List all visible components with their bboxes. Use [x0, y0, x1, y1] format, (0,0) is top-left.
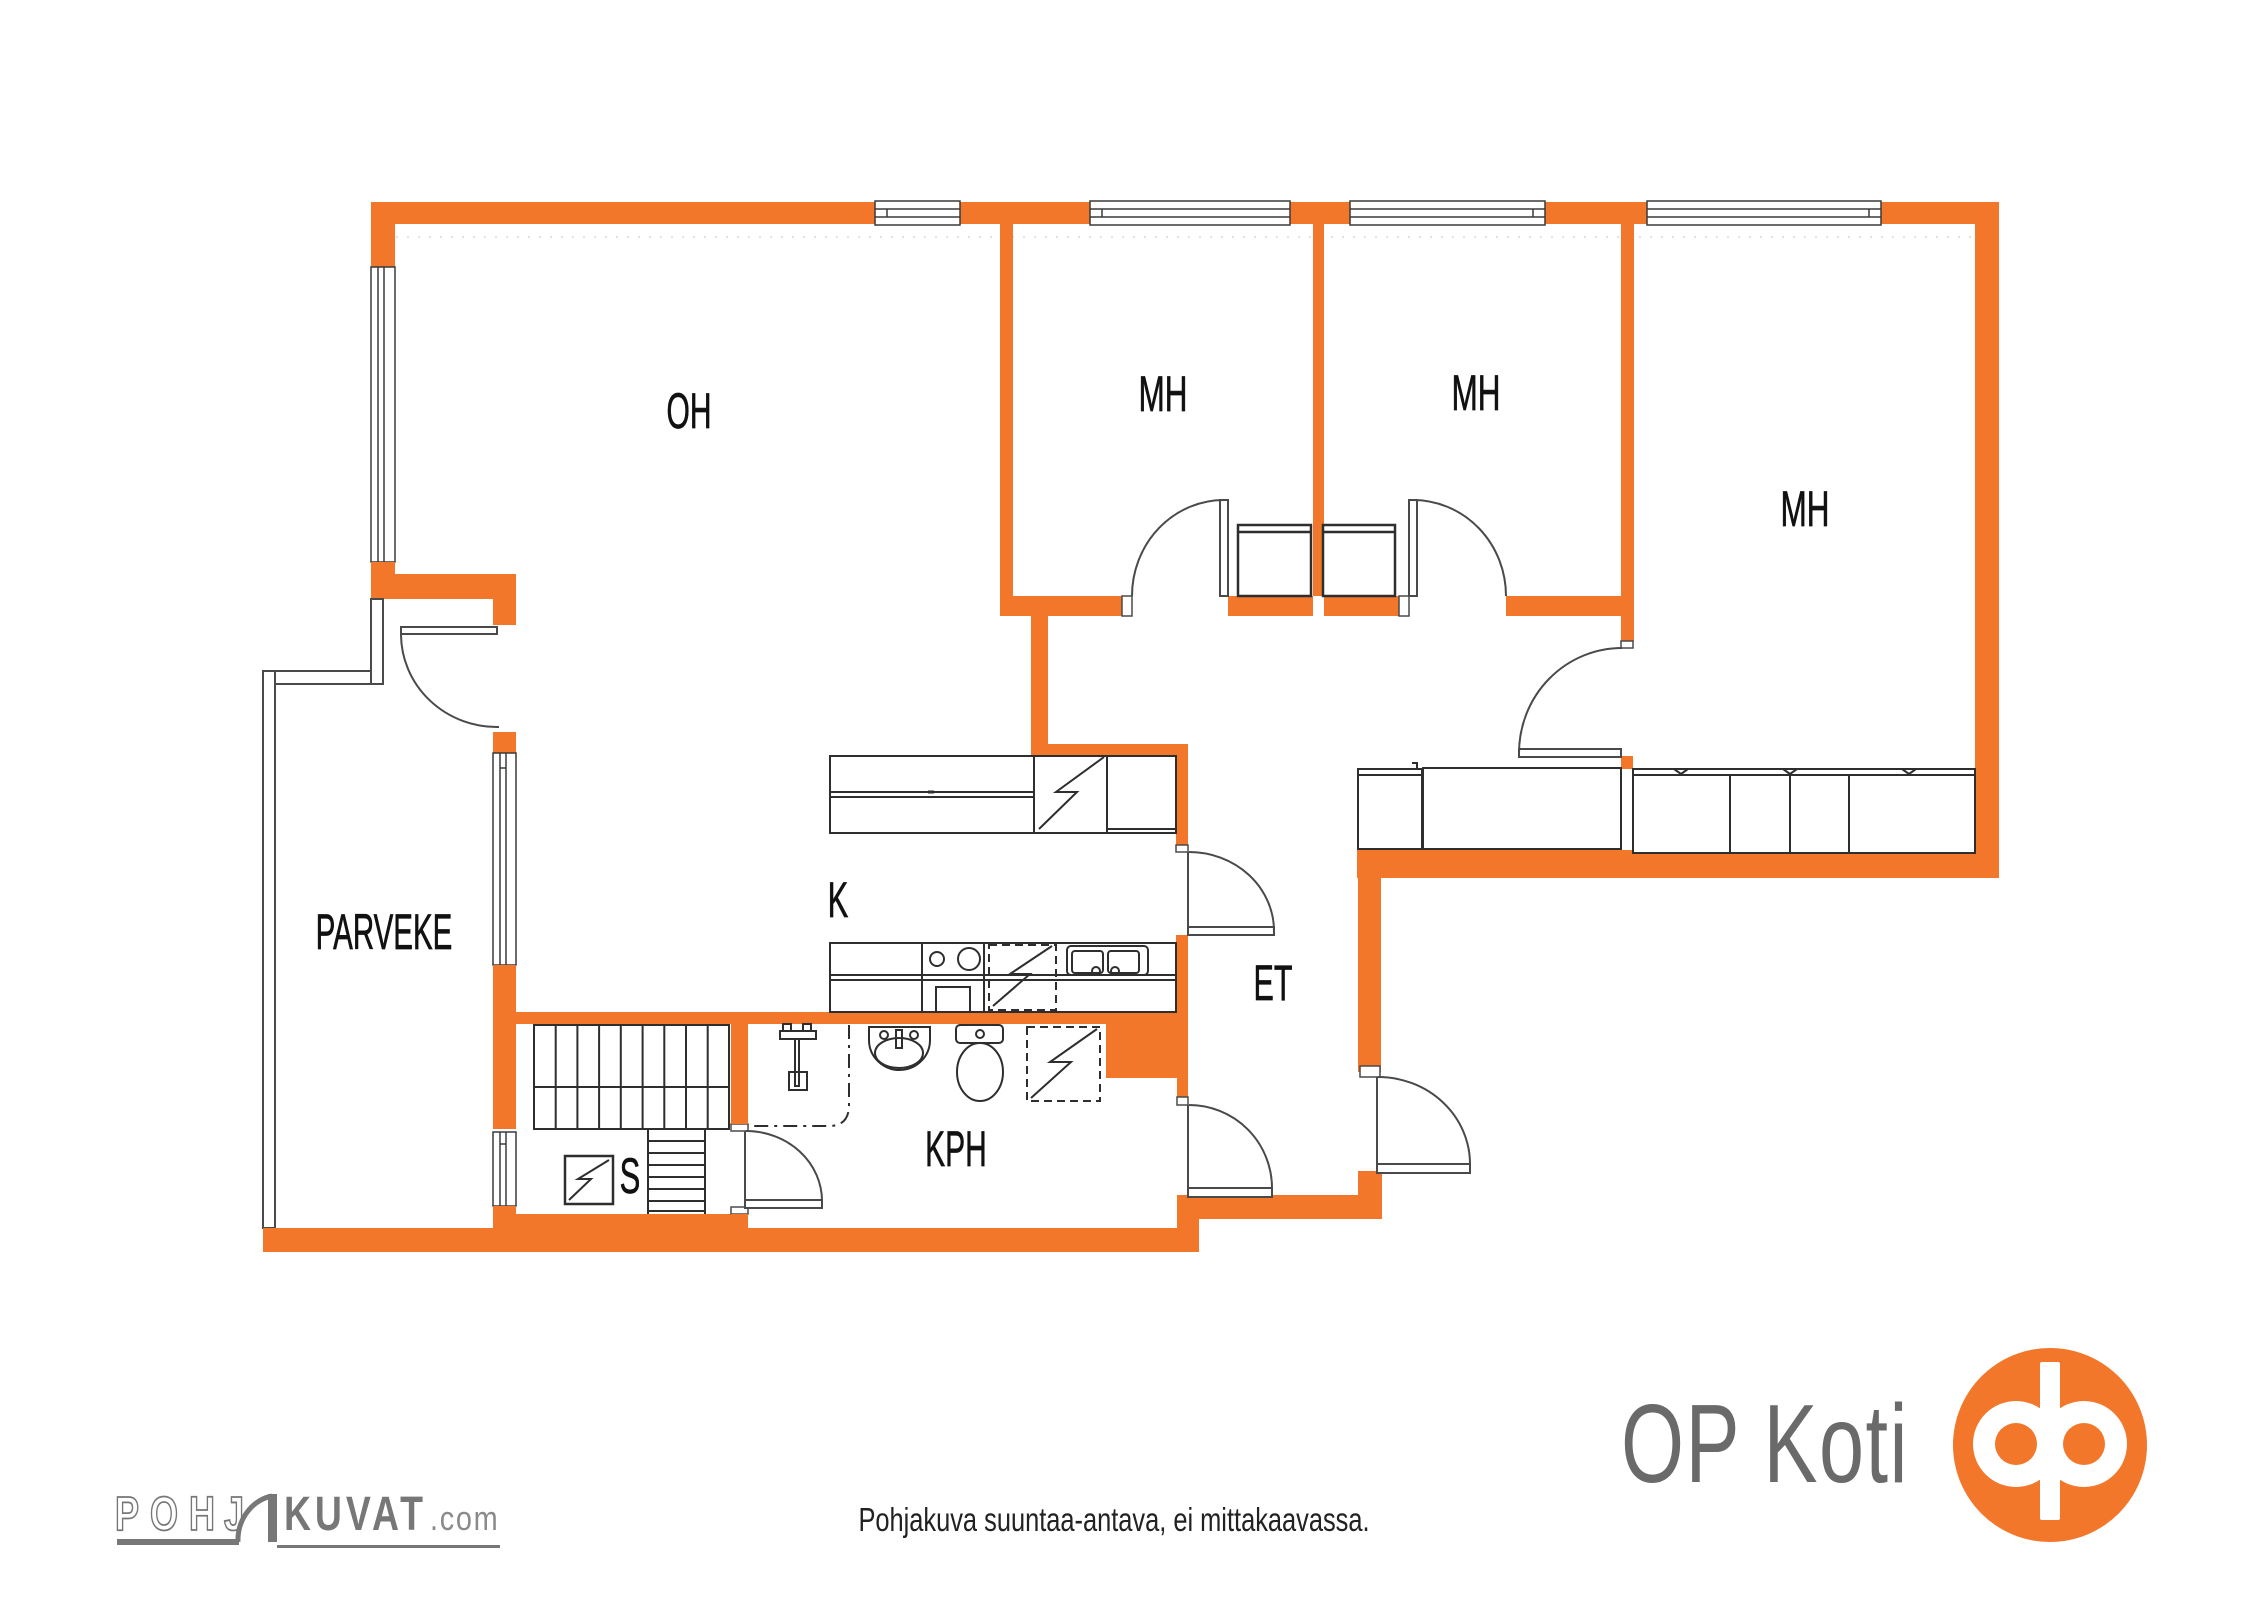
svg-text:OH: OH	[667, 383, 712, 439]
svg-text:KPH: KPH	[925, 1121, 987, 1177]
svg-text:Pohjakuva suuntaa-antava, ei m: Pohjakuva suuntaa-antava, ei mittakaavas…	[858, 1502, 1369, 1539]
svg-text:PARVEKE: PARVEKE	[316, 904, 453, 960]
svg-text:OP Koti: OP Koti	[1621, 1381, 1909, 1506]
svg-text:O: O	[150, 1487, 178, 1540]
svg-text:MH: MH	[1781, 481, 1830, 537]
svg-text:.com: .com	[430, 1499, 499, 1538]
svg-text:MH: MH	[1139, 366, 1188, 422]
svg-text:S: S	[620, 1147, 641, 1203]
svg-text:K: K	[828, 871, 849, 927]
svg-text:H: H	[189, 1487, 215, 1540]
svg-text:P: P	[115, 1487, 139, 1540]
svg-text:KUVAT: KUVAT	[284, 1488, 427, 1542]
svg-text:ET: ET	[1254, 955, 1293, 1011]
svg-text:MH: MH	[1452, 365, 1501, 421]
